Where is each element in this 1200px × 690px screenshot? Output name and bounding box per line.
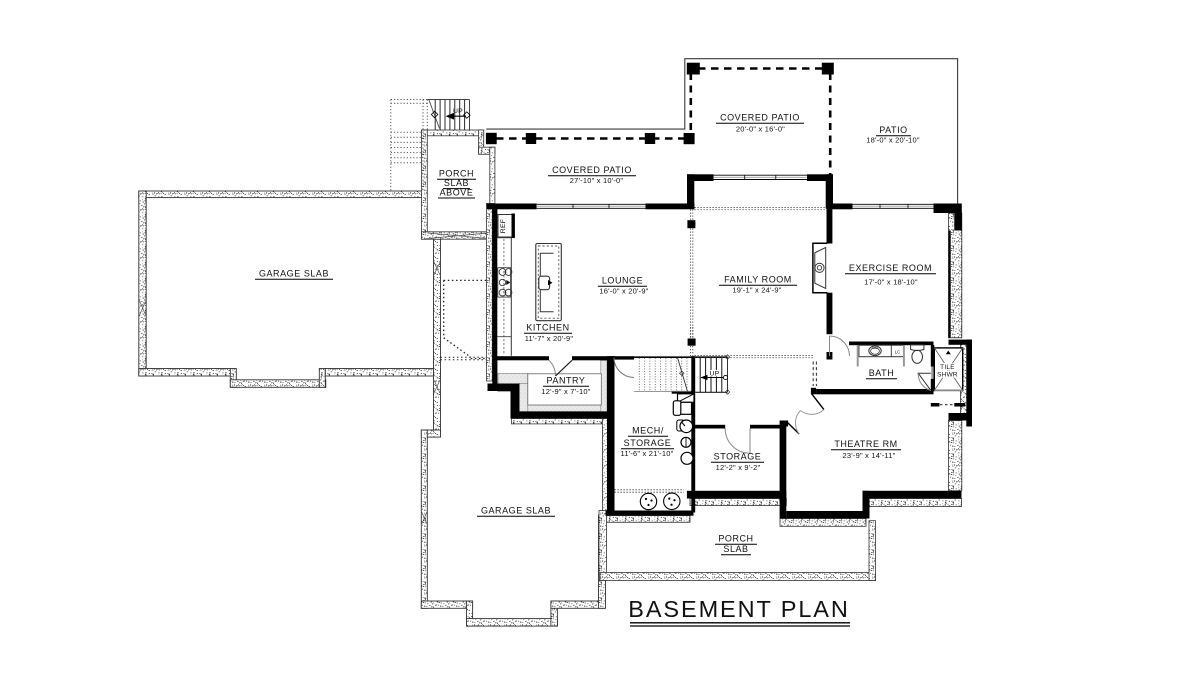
svg-text:PANTRY: PANTRY bbox=[547, 376, 586, 386]
svg-text:KITCHEN: KITCHEN bbox=[526, 323, 569, 333]
svg-text:PATIO: PATIO bbox=[879, 125, 907, 135]
svg-text:STORAGE: STORAGE bbox=[624, 438, 672, 448]
svg-text:23'-9" x 14'-11": 23'-9" x 14'-11" bbox=[843, 451, 896, 460]
svg-text:BASEMENT PLAN: BASEMENT PLAN bbox=[628, 596, 849, 622]
svg-text:PORCH: PORCH bbox=[718, 534, 753, 544]
svg-text:COVERED PATIO: COVERED PATIO bbox=[552, 165, 632, 175]
svg-text:BATH: BATH bbox=[869, 368, 895, 378]
svg-text:LC: LC bbox=[895, 350, 901, 355]
svg-text:FAMILY ROOM: FAMILY ROOM bbox=[724, 275, 792, 285]
svg-text:MECH/: MECH/ bbox=[632, 426, 664, 436]
svg-text:REF: REF bbox=[500, 219, 507, 234]
svg-text:SLAB: SLAB bbox=[723, 544, 748, 554]
svg-text:UP: UP bbox=[453, 108, 463, 115]
svg-text:27'-10" x 10'-0": 27'-10" x 10'-0" bbox=[570, 176, 624, 185]
svg-text:GARAGE SLAB: GARAGE SLAB bbox=[259, 269, 329, 279]
svg-text:STORAGE: STORAGE bbox=[714, 452, 762, 462]
svg-text:12'-9" x 7'-10": 12'-9" x 7'-10" bbox=[541, 387, 590, 396]
svg-text:THEATRE RM: THEATRE RM bbox=[834, 439, 897, 449]
svg-text:11'-7" x 20'-9": 11'-7" x 20'-9" bbox=[525, 334, 574, 343]
svg-text:UP: UP bbox=[709, 371, 719, 378]
svg-text:TILE: TILE bbox=[940, 364, 955, 371]
svg-text:11'-6" x 21'-10": 11'-6" x 21'-10" bbox=[621, 449, 674, 458]
svg-text:12'-2" x 9'-2": 12'-2" x 9'-2" bbox=[716, 463, 761, 472]
svg-text:ABOVE: ABOVE bbox=[440, 187, 474, 197]
svg-text:COVERED PATIO: COVERED PATIO bbox=[720, 113, 800, 123]
svg-text:EXERCISE ROOM: EXERCISE ROOM bbox=[849, 263, 932, 273]
svg-text:16'-0" x 20'-9": 16'-0" x 20'-9" bbox=[599, 287, 648, 296]
svg-text:GARAGE SLAB: GARAGE SLAB bbox=[481, 506, 551, 516]
svg-text:17'-0" x 18'-10": 17'-0" x 18'-10" bbox=[864, 278, 918, 287]
svg-text:20'-0" x 16'-0": 20'-0" x 16'-0" bbox=[736, 125, 785, 134]
svg-text:18'-0" x 20'-10": 18'-0" x 20'-10" bbox=[866, 136, 920, 145]
svg-text:19'-1" x 24'-9": 19'-1" x 24'-9" bbox=[732, 286, 781, 295]
svg-text:LOUNGE: LOUNGE bbox=[602, 276, 643, 286]
svg-text:SHWR: SHWR bbox=[937, 371, 958, 378]
